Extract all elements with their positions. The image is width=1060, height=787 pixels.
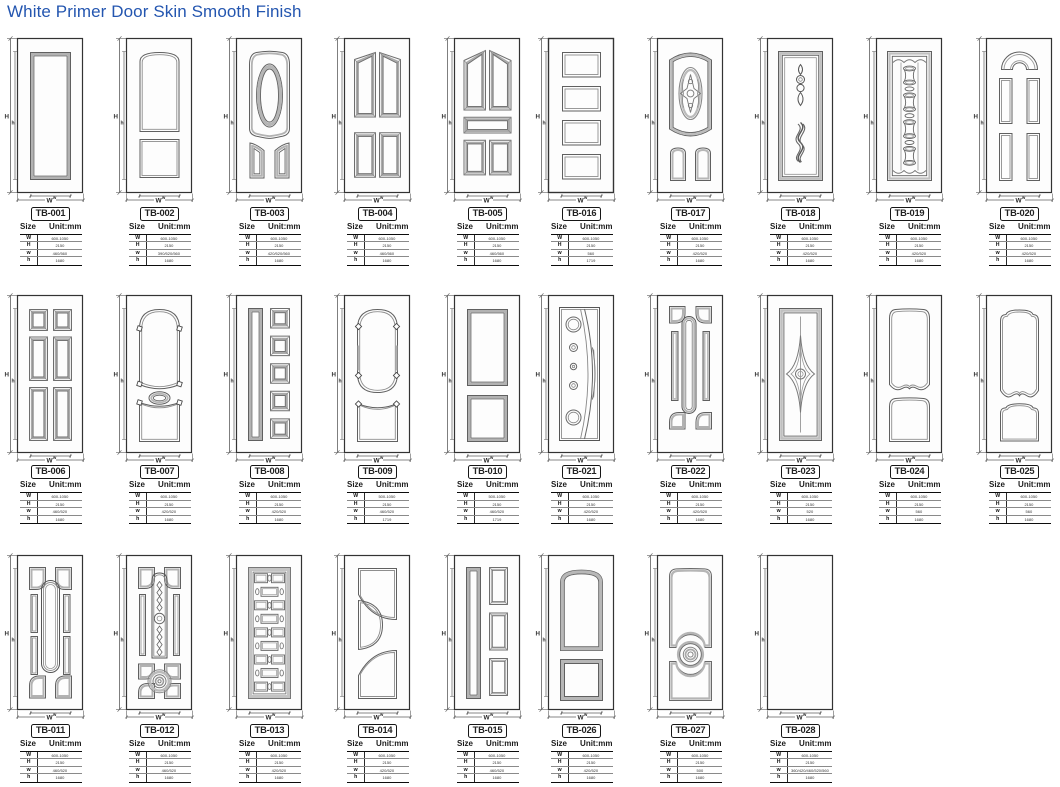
svg-text:h: h — [652, 121, 655, 127]
svg-text:w: w — [271, 712, 276, 717]
svg-text:h: h — [543, 638, 546, 644]
svg-text:h: h — [121, 379, 124, 385]
svg-text:w: w — [379, 455, 384, 460]
svg-text:h: h — [652, 379, 655, 385]
svg-text:w: w — [802, 195, 807, 200]
svg-text:h: h — [449, 638, 452, 644]
svg-text:H: H — [974, 114, 979, 121]
svg-text:h: h — [339, 121, 342, 127]
svg-text:H: H — [224, 372, 229, 379]
svg-text:H: H — [5, 631, 10, 638]
svg-text:h: h — [339, 379, 342, 385]
svg-text:H: H — [755, 372, 760, 379]
svg-text:h: h — [652, 638, 655, 644]
svg-text:h: h — [543, 121, 546, 127]
svg-text:w: w — [52, 455, 57, 460]
svg-text:h: h — [231, 379, 234, 385]
svg-text:h: h — [543, 379, 546, 385]
svg-text:H: H — [224, 114, 229, 121]
svg-text:H: H — [755, 114, 760, 121]
svg-text:w: w — [802, 712, 807, 717]
svg-text:H: H — [224, 631, 229, 638]
svg-text:h: h — [449, 121, 452, 127]
svg-text:h: h — [121, 638, 124, 644]
svg-text:H: H — [332, 114, 337, 121]
svg-text:H: H — [5, 372, 10, 379]
svg-text:H: H — [442, 372, 447, 379]
svg-text:w: w — [161, 455, 166, 460]
svg-text:h: h — [449, 379, 452, 385]
svg-text:w: w — [1021, 195, 1026, 200]
svg-text:h: h — [12, 121, 15, 127]
svg-text:H: H — [645, 114, 650, 121]
svg-text:w: w — [52, 195, 57, 200]
svg-text:H: H — [114, 114, 119, 121]
svg-text:w: w — [911, 455, 916, 460]
svg-text:H: H — [332, 631, 337, 638]
svg-text:h: h — [871, 379, 874, 385]
svg-text:H: H — [114, 372, 119, 379]
svg-text:w: w — [52, 712, 57, 717]
svg-text:H: H — [332, 372, 337, 379]
svg-text:H: H — [114, 631, 119, 638]
svg-text:w: w — [161, 712, 166, 717]
svg-text:w: w — [161, 195, 166, 200]
svg-text:h: h — [762, 638, 765, 644]
svg-text:w: w — [489, 195, 494, 200]
svg-text:h: h — [339, 638, 342, 644]
svg-text:h: h — [231, 638, 234, 644]
svg-text:h: h — [12, 379, 15, 385]
svg-text:h: h — [981, 379, 984, 385]
svg-text:w: w — [271, 195, 276, 200]
svg-text:w: w — [911, 195, 916, 200]
svg-text:h: h — [231, 121, 234, 127]
svg-text:H: H — [974, 372, 979, 379]
svg-text:w: w — [692, 195, 697, 200]
svg-text:w: w — [583, 712, 588, 717]
svg-text:H: H — [645, 631, 650, 638]
svg-text:w: w — [802, 455, 807, 460]
svg-text:H: H — [5, 114, 10, 121]
svg-text:H: H — [442, 114, 447, 121]
svg-text:w: w — [489, 455, 494, 460]
svg-text:w: w — [489, 712, 494, 717]
svg-text:H: H — [864, 372, 869, 379]
svg-text:h: h — [762, 379, 765, 385]
svg-text:H: H — [755, 631, 760, 638]
svg-text:H: H — [536, 114, 541, 121]
svg-text:w: w — [583, 455, 588, 460]
svg-text:H: H — [536, 372, 541, 379]
svg-text:w: w — [271, 455, 276, 460]
svg-text:w: w — [1021, 455, 1026, 460]
svg-text:w: w — [379, 195, 384, 200]
svg-text:h: h — [871, 121, 874, 127]
svg-text:w: w — [692, 712, 697, 717]
svg-text:h: h — [12, 638, 15, 644]
svg-text:H: H — [536, 631, 541, 638]
svg-text:w: w — [583, 195, 588, 200]
svg-text:H: H — [645, 372, 650, 379]
svg-text:h: h — [121, 121, 124, 127]
svg-text:H: H — [864, 114, 869, 121]
svg-text:w: w — [379, 712, 384, 717]
svg-text:h: h — [981, 121, 984, 127]
svg-text:H: H — [442, 631, 447, 638]
svg-text:w: w — [692, 455, 697, 460]
svg-text:h: h — [762, 121, 765, 127]
